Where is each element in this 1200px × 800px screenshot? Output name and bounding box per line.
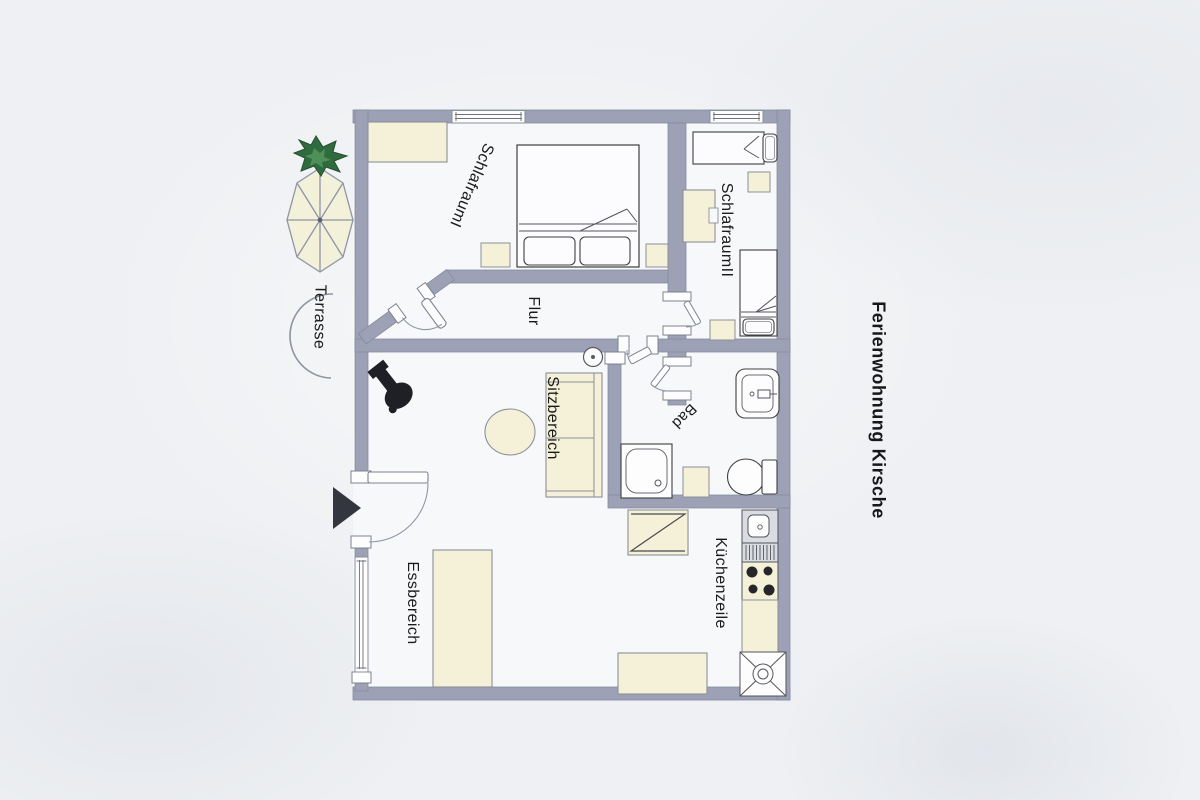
nightstand — [481, 243, 510, 267]
door-jamb — [663, 391, 691, 400]
window-jamb — [352, 672, 371, 683]
label-schlafraum2: SchlafraumII — [717, 183, 735, 278]
parasol-icon — [287, 168, 353, 272]
nightstand — [646, 244, 668, 267]
single-bed-bottom — [740, 250, 777, 336]
page-title: Ferienwohnung Kirsche — [868, 301, 889, 519]
wall-bedroom1-south — [448, 270, 668, 283]
door-jamb — [605, 352, 625, 364]
hob — [742, 562, 778, 600]
corner-carousel — [740, 652, 786, 696]
toilet — [728, 459, 778, 495]
floorplan-drawing — [0, 0, 1200, 800]
wardrobe — [683, 190, 718, 242]
label-terrasse: Terrasse — [309, 285, 328, 350]
washbasin — [736, 369, 779, 418]
wall-bottom — [353, 687, 790, 700]
single-bed-top — [693, 132, 777, 164]
window-dining — [355, 557, 368, 672]
kitchen-sink — [742, 510, 778, 543]
shower — [621, 444, 672, 498]
door-jamb — [663, 357, 691, 366]
side-table — [748, 172, 770, 192]
label-essbereich: Essbereich — [403, 561, 421, 644]
pillow — [524, 237, 575, 265]
label-sitzbereich: Sitzbereich — [543, 376, 561, 460]
bench — [618, 653, 707, 694]
shelf-unit — [628, 510, 688, 555]
dining-table — [433, 550, 492, 687]
label-kuechenzeile: Küchenzeile — [711, 537, 729, 629]
wall-hall-south-east — [648, 339, 790, 352]
ceiling-lamp-icon — [584, 348, 603, 367]
nightstand — [710, 320, 735, 340]
door-jamb — [663, 292, 691, 301]
double-bed — [517, 145, 639, 267]
wall-left-upper — [355, 110, 368, 472]
plant-icon — [294, 136, 347, 176]
window-bedroom1 — [452, 111, 525, 124]
label-flur: Flur — [524, 296, 542, 325]
door-jamb — [351, 536, 371, 548]
pillow — [580, 237, 630, 265]
drainer — [742, 543, 778, 562]
wall-left-mid — [355, 548, 368, 557]
bath-cabinet — [683, 467, 709, 497]
wall-bath-west — [608, 352, 621, 497]
counter — [742, 600, 778, 652]
round-table — [485, 409, 535, 455]
floorplan-page: Terrasse SchlafraumI SchlafraumII Flur S… — [0, 0, 1200, 800]
wardrobe — [368, 122, 447, 162]
window-bedroom2 — [710, 111, 763, 124]
